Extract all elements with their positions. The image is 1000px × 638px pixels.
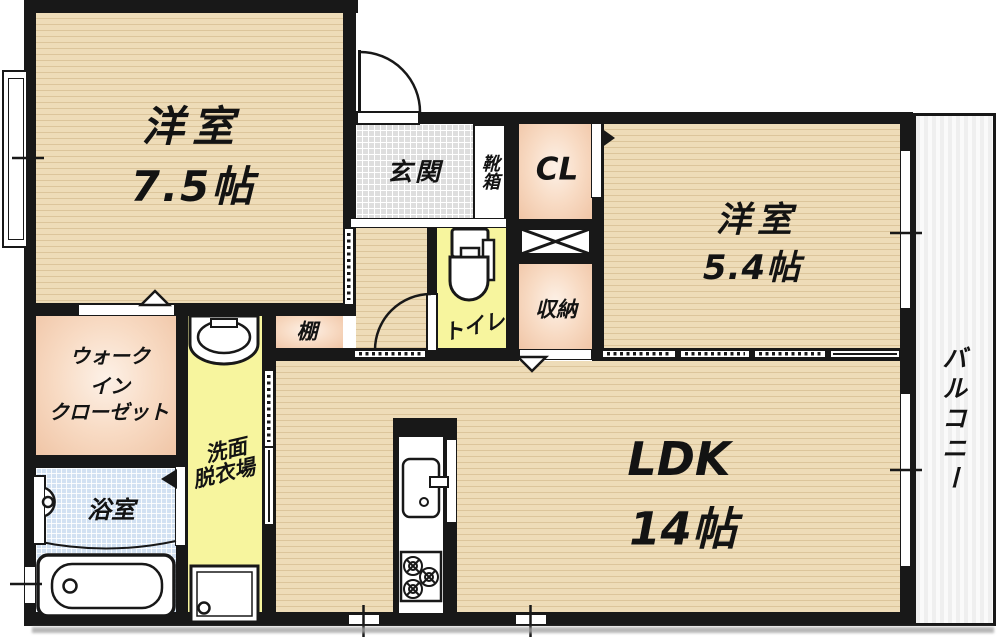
bathtub-icon: [36, 541, 176, 616]
label-western-room-54-size: 5.4帖: [703, 251, 801, 285]
label-wic-line3: クローゼット: [49, 402, 169, 422]
washbasin-icon: [190, 316, 258, 364]
washing-machine-icon: [191, 566, 258, 622]
label-wic-line1: ウォーク: [70, 346, 150, 366]
toilet-icon: [450, 229, 494, 300]
floor-plan: 洋室 7.5帖 玄関 靴箱 CL 洋室 5.4帖 トイレ 収納 棚 ウォーク イ…: [0, 0, 1000, 638]
toilet-door-icon: [375, 294, 437, 351]
label-western-room-75-name: 洋室: [142, 106, 242, 148]
bathroom-door-swing-marker: [161, 469, 177, 489]
stove-burners-icon: [401, 552, 441, 601]
label-wic-line2: イン: [90, 376, 130, 396]
label-balcony: バルコニー: [941, 345, 966, 495]
cl-door-swing-marker: [601, 128, 615, 148]
label-western-room-54-name: 洋室: [716, 204, 798, 239]
wic-opening-marker: [141, 291, 169, 305]
entrance-door-icon: [357, 50, 420, 124]
label-ldk-size: 14帖: [629, 507, 737, 552]
kitchen-sink-icon: [403, 459, 448, 517]
pipe-space-x-icon: [521, 229, 590, 254]
plan-drop-shadow: [32, 627, 994, 633]
label-entrance: 玄関: [387, 160, 443, 185]
storage-opening-marker: [518, 357, 546, 371]
bath-counter-icon: [33, 476, 55, 544]
label-shoe-box: 靴箱: [480, 154, 498, 190]
label-ldk-name: LDK: [627, 436, 730, 482]
label-bathroom: 浴室: [87, 498, 135, 522]
label-shelf: 棚: [297, 322, 318, 343]
label-closet-cl: CL: [536, 155, 579, 186]
label-western-room-75-size: 7.5帖: [131, 166, 255, 208]
label-storage: 収納: [535, 300, 577, 321]
